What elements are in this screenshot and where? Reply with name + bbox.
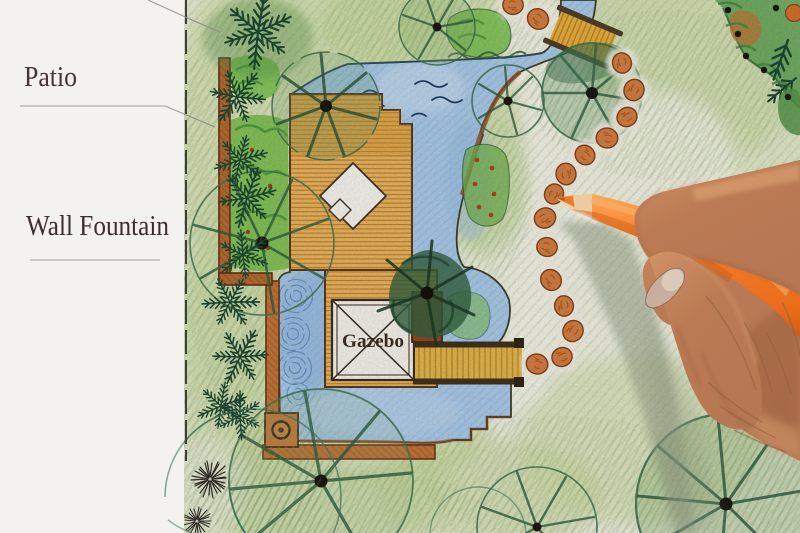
svg-text:Patio: Patio (24, 62, 77, 93)
svg-text:Wall Fountain: Wall Fountain (26, 211, 169, 242)
